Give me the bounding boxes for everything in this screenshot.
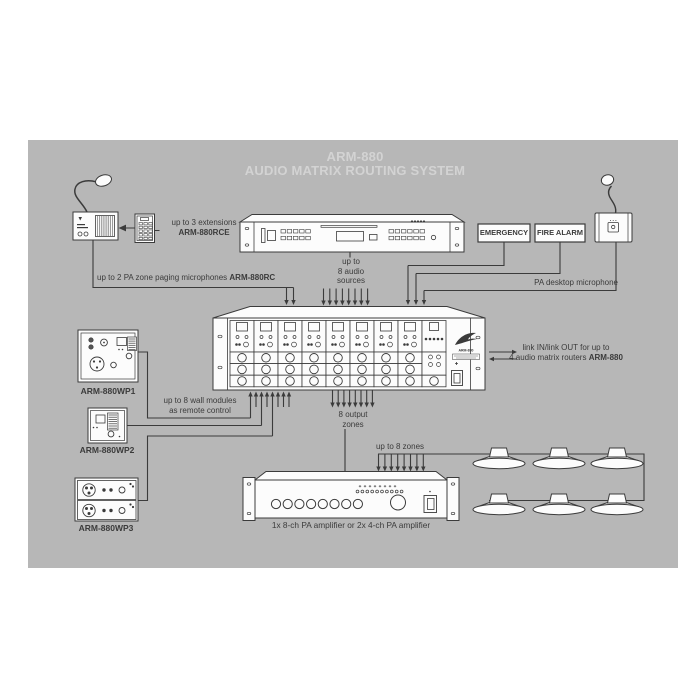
- knob-icon: [238, 354, 247, 363]
- strip-button: [269, 336, 272, 339]
- link-label-model: ARM-880: [589, 353, 623, 362]
- strip-led: [404, 344, 406, 346]
- dot: [132, 486, 133, 487]
- alarm-mic-input-arrow-head: [422, 300, 426, 305]
- rack-hole: [218, 366, 222, 369]
- sources-label-line1: up to: [337, 257, 365, 267]
- indicator-dot: [414, 221, 415, 222]
- ceiling-speaker: [591, 494, 643, 515]
- rack-hole: [245, 227, 249, 229]
- gooseneck: [609, 186, 616, 213]
- extensions-label: up to 3 extensions ARM-880RCE: [172, 218, 237, 237]
- rack-front: [255, 480, 447, 518]
- title-line1: ARM-880: [245, 150, 465, 164]
- level-led: [386, 490, 389, 493]
- power-frame: [268, 231, 276, 241]
- keypad-key: [139, 237, 142, 239]
- speaker-hat: [608, 448, 627, 457]
- strip-led: [308, 344, 310, 346]
- speaker-rim: [473, 458, 525, 468]
- left-arrow-icon: [119, 225, 127, 232]
- strip-led: [441, 338, 443, 340]
- wall-plate-wp2-device: [88, 408, 127, 443]
- led: [103, 509, 105, 511]
- sources-label-line3: sources: [337, 276, 365, 286]
- led: [118, 349, 120, 351]
- output-zone-arrow-head: [353, 403, 357, 408]
- knob-icon: [286, 354, 295, 363]
- level-led: [381, 490, 384, 493]
- wp2-label: ARM-880WP2: [80, 446, 135, 456]
- strip-led: [407, 344, 409, 346]
- strip-display: [261, 323, 272, 332]
- desktop-mic-label: PA desktop microphone: [534, 278, 618, 288]
- source-button: [408, 236, 413, 240]
- strip-button: [236, 336, 239, 339]
- knob-icon: [286, 377, 295, 386]
- zone-knob-icon: [342, 499, 351, 508]
- master-button: [437, 355, 441, 359]
- output-zone-arrow-head: [336, 403, 340, 408]
- knob-icon: [358, 377, 367, 386]
- speaker-hat: [550, 448, 569, 457]
- strip-led: [433, 338, 435, 340]
- speaker-rim: [591, 504, 643, 514]
- led: [110, 489, 112, 491]
- strip-led: [425, 338, 427, 340]
- source-button: [306, 236, 311, 240]
- strip-button: [308, 336, 311, 339]
- wall-module-arrow-head: [281, 392, 285, 397]
- talk-button-dot: [612, 225, 615, 228]
- label-mark: [77, 224, 85, 225]
- link-label: link IN/link OUT for up to 4 audio matri…: [509, 343, 623, 362]
- paging-label: up to 2 PA zone paging microphones ARM-8…: [97, 273, 275, 283]
- strip-led: [332, 344, 334, 346]
- rack-hole: [476, 367, 480, 370]
- strip-trim-knob: [316, 342, 321, 347]
- source-input-arrow-head: [347, 301, 351, 306]
- keypad-key: [144, 230, 147, 232]
- knob-icon: [108, 431, 114, 437]
- keypad-key: [139, 223, 142, 225]
- source-input-arrow-head: [359, 301, 363, 306]
- wall-plate-wp3-device: [75, 478, 138, 521]
- strip-button: [293, 336, 296, 339]
- wp3-label: ARM-880WP3: [79, 524, 134, 534]
- wp1-label: ARM-880WP1: [81, 387, 136, 397]
- master-button: [437, 363, 441, 367]
- ceiling-speaker: [473, 494, 525, 515]
- knob-icon: [310, 354, 319, 363]
- xlr-pin: [99, 360, 101, 362]
- strip-trim-knob: [388, 342, 393, 347]
- sources-label-line2: 8 audio: [337, 267, 365, 277]
- paging-microphone-device: [73, 173, 135, 240]
- xlr-pin: [91, 508, 93, 510]
- strip-led: [287, 344, 289, 346]
- level-led: [400, 490, 403, 493]
- strip-button: [389, 336, 392, 339]
- output-zone-arrow-head: [359, 403, 363, 408]
- led: [96, 427, 98, 429]
- output-zone-arrow-head: [365, 403, 369, 408]
- led: [429, 491, 431, 493]
- output-zones-line1: 8 output: [339, 410, 368, 420]
- keypad-key: [149, 237, 152, 239]
- strip-display: [357, 323, 368, 332]
- zone-knob-icon: [295, 499, 304, 508]
- wall-module-arrow-head: [270, 392, 274, 397]
- power-rocker: [428, 499, 435, 510]
- source-button: [389, 236, 394, 240]
- source-input-arrow-head: [321, 301, 325, 306]
- wall-module-arrow-head: [287, 392, 291, 397]
- page-title: ARM-880 AUDIO MATRIX ROUTING SYSTEM: [245, 150, 465, 178]
- strip-trim-knob: [244, 342, 249, 347]
- source-input-arrow-head: [365, 301, 369, 306]
- source-button: [281, 236, 286, 240]
- indicator-dot: [420, 221, 421, 222]
- strip-trim-knob: [340, 342, 345, 347]
- strip-display: [381, 323, 392, 332]
- zone-knob-icon: [353, 499, 362, 508]
- link-label-line1: link IN/link OUT for up to: [509, 343, 623, 353]
- link-label-line2-text: 4 audio matrix routers: [509, 353, 586, 362]
- display: [96, 415, 105, 423]
- dot: [130, 483, 131, 484]
- master-knob-icon: [391, 495, 406, 510]
- source-button: [395, 230, 400, 234]
- zones-label: up to 8 zones: [376, 442, 424, 452]
- knob-icon: [406, 354, 415, 363]
- led: [610, 220, 611, 221]
- rack-top: [213, 307, 485, 319]
- knob-icon: [406, 377, 415, 386]
- strip-led: [359, 344, 361, 346]
- speaker-hat: [550, 494, 569, 503]
- zone-knob-icon: [283, 499, 292, 508]
- amp-zone-arrow-head: [415, 467, 419, 472]
- source-button: [420, 236, 425, 240]
- jog-knob: [431, 235, 435, 239]
- strip-button: [260, 336, 263, 339]
- knob-icon: [119, 487, 125, 493]
- level-led: [395, 490, 398, 493]
- xlr-pin: [93, 360, 95, 362]
- channel-strips: [230, 321, 446, 387]
- source-button: [306, 230, 311, 234]
- speaker-hat: [490, 448, 509, 457]
- indicator-dot: [411, 221, 412, 222]
- rack-hole: [247, 512, 251, 514]
- paging-label-model: ARM-880RC: [229, 273, 275, 282]
- led: [119, 436, 121, 438]
- speaker-rim: [591, 458, 643, 468]
- keypad-key: [139, 230, 142, 232]
- power-button: [262, 229, 266, 243]
- gooseneck: [75, 181, 96, 212]
- strip-button: [284, 336, 287, 339]
- strip-trim-knob: [412, 342, 417, 347]
- wall-modules-line1: up to 8 wall modules: [164, 396, 237, 406]
- title-line2: AUDIO MATRIX ROUTING SYSTEM: [245, 164, 465, 178]
- master-cell: [422, 352, 446, 375]
- audio-source-device: [240, 215, 464, 253]
- grille: [109, 415, 118, 428]
- xlr-pin: [96, 366, 98, 368]
- led: [110, 509, 112, 511]
- button: [84, 232, 88, 236]
- xlr-pin: [86, 508, 88, 510]
- source-input-arrow-head: [353, 301, 357, 306]
- link-in-arrow-head: [489, 357, 494, 361]
- power-rocker: [454, 374, 460, 384]
- wall-module-arrow-head: [248, 392, 252, 397]
- eject-button: [370, 235, 378, 241]
- strip-button: [413, 336, 416, 339]
- amp-zone-arrow-head: [389, 467, 393, 472]
- wall-module-arrow-head: [265, 392, 269, 397]
- amplifier-label: 1x 8-ch PA amplifier or 2x 4-ch PA ampli…: [272, 521, 430, 531]
- indicator-dot: [423, 221, 424, 222]
- knob-icon: [262, 365, 271, 374]
- fire-alarm-label: FIRE ALARM: [535, 224, 585, 242]
- strip-display: [237, 323, 248, 332]
- led: [103, 489, 105, 491]
- speaker-hat: [490, 494, 509, 503]
- xlr-pin: [91, 487, 93, 489]
- knob-icon: [126, 353, 132, 359]
- strip-led: [356, 344, 358, 346]
- output-zone-arrow-head: [330, 403, 334, 408]
- xlr-pin: [88, 492, 90, 494]
- level-led: [371, 490, 374, 493]
- strip-led: [284, 344, 286, 346]
- knob-dot: [103, 342, 105, 344]
- alarm-mic-input-arrow-head: [414, 300, 418, 305]
- extension-module-device: [135, 214, 160, 243]
- strip-led: [380, 344, 382, 346]
- strip-button: [356, 336, 359, 339]
- speaker-rim: [533, 504, 585, 514]
- knob-icon: [382, 377, 391, 386]
- rack-hole: [476, 336, 480, 339]
- keypad-key: [144, 237, 147, 239]
- master-button: [429, 363, 433, 367]
- diagram-page: ARM-880: [0, 0, 700, 700]
- strip-led: [260, 344, 262, 346]
- knob-icon: [334, 365, 343, 374]
- output-zone-arrow-head: [370, 403, 374, 408]
- knob-icon: [262, 354, 271, 363]
- source-button: [401, 236, 406, 240]
- strip-button: [365, 336, 368, 339]
- keypad-key: [139, 226, 142, 228]
- ceiling-speaker: [591, 448, 643, 469]
- ceiling-speaker: [533, 448, 585, 469]
- pa-amplifier-device: [243, 472, 459, 521]
- output-zones-line2: zones: [339, 420, 368, 430]
- source-button: [395, 236, 400, 240]
- knob-icon: [358, 365, 367, 374]
- button: [89, 338, 93, 342]
- paging-label-text: up to 2 PA zone paging microphones: [97, 273, 227, 282]
- strip-button: [404, 336, 407, 339]
- source-input-arrow-head: [334, 301, 338, 306]
- knob-icon: [382, 365, 391, 374]
- source-button: [300, 236, 305, 240]
- wall-module-arrow-head: [259, 392, 263, 397]
- knob-icon: [430, 377, 439, 386]
- keypad-key: [139, 234, 142, 236]
- mic-capsule: [94, 173, 113, 188]
- strip-led: [383, 344, 385, 346]
- keypad-key: [149, 230, 152, 232]
- source-button: [408, 230, 413, 234]
- knob-icon: [310, 377, 319, 386]
- level-led: [390, 490, 393, 493]
- output-zone-arrow-head: [342, 403, 346, 408]
- rack-hole: [451, 483, 455, 485]
- source-button: [420, 230, 425, 234]
- xlr-pin: [88, 513, 90, 515]
- strip-led: [335, 344, 337, 346]
- rack-hole: [455, 227, 459, 229]
- led: [613, 220, 614, 221]
- extension-keypad: [139, 223, 152, 240]
- level-led: [356, 490, 359, 493]
- extension-display: [141, 218, 149, 221]
- amp-zone-arrow-head: [408, 467, 412, 472]
- rack-hole: [451, 512, 455, 514]
- label-mark: [77, 227, 88, 228]
- zone-knob-icon: [271, 499, 280, 508]
- level-led: [366, 490, 369, 493]
- rack-hole: [218, 335, 222, 338]
- rack-hole: [245, 244, 249, 246]
- alarm-mic-input-arrow-head: [406, 300, 410, 305]
- knob-icon: [334, 354, 343, 363]
- extensions-label-model: ARM-880RCE: [172, 228, 237, 238]
- source-button: [287, 236, 292, 240]
- keypad-key: [149, 226, 152, 228]
- rack-hole: [455, 244, 459, 246]
- source-button: [401, 230, 406, 234]
- rack-top: [240, 215, 464, 223]
- strip-trim-knob: [364, 342, 369, 347]
- strip-led: [429, 338, 431, 340]
- strip-led: [236, 344, 238, 346]
- knob-icon: [238, 377, 247, 386]
- wall-module-arrow-head: [254, 392, 258, 397]
- strip-button: [341, 336, 344, 339]
- amp-zone-arrow-head: [376, 467, 380, 472]
- emergency-label: EMERGENCY: [478, 224, 530, 242]
- strip-trim-knob: [292, 342, 297, 347]
- knob-icon: [358, 354, 367, 363]
- strip-led: [311, 344, 313, 346]
- led: [615, 220, 616, 221]
- keypad-key: [149, 234, 152, 236]
- matrix-router-device: ARM-880: [213, 307, 485, 391]
- strip-display: [430, 323, 439, 331]
- source-input-arrow-head: [340, 301, 344, 306]
- keypad-key: [144, 234, 147, 236]
- knob-icon: [334, 377, 343, 386]
- source-button: [389, 230, 394, 234]
- strip-button: [380, 336, 383, 339]
- speaker-rim: [533, 458, 585, 468]
- mic-capsule: [600, 173, 615, 186]
- dot: [130, 504, 131, 505]
- led: [122, 349, 124, 351]
- knob-icon: [262, 377, 271, 386]
- source-display: [337, 232, 364, 242]
- zone-knob-icon: [318, 499, 327, 508]
- keypad-key: [144, 223, 147, 225]
- source-button: [287, 230, 292, 234]
- extensions-label-line1: up to 3 extensions: [172, 218, 237, 228]
- rack-top: [255, 472, 447, 481]
- cd-slot: [321, 226, 377, 228]
- strip-display: [405, 323, 416, 332]
- output-zones-label: 8 output zones: [339, 410, 368, 429]
- amp-zone-arrow-head: [396, 467, 400, 472]
- strip-button: [245, 336, 248, 339]
- xlr-socket-icon: [90, 357, 104, 371]
- strip-led: [263, 344, 265, 346]
- dot: [132, 506, 133, 507]
- paging-input-arrow-head: [284, 300, 288, 305]
- ceiling-speaker: [473, 448, 525, 469]
- knob-icon: [382, 354, 391, 363]
- display: [117, 338, 127, 346]
- matrix-model-text: ARM-880: [459, 349, 474, 353]
- speaker-rim: [473, 504, 525, 514]
- knob-icon: [286, 365, 295, 374]
- button: [78, 232, 82, 236]
- speaker-hat: [608, 494, 627, 503]
- amp-zone-arrow-head: [402, 467, 406, 472]
- knob-icon: [310, 365, 319, 374]
- zone-knob-icon: [330, 499, 339, 508]
- ceiling-speaker: [533, 494, 585, 515]
- led: [93, 427, 95, 429]
- zone-knob-icon: [307, 499, 316, 508]
- desktop-microphone-device: [595, 173, 632, 242]
- knob-icon: [111, 362, 117, 368]
- source-button: [414, 230, 419, 234]
- model-plate: [453, 354, 480, 360]
- strip-button: [317, 336, 320, 339]
- level-led: [376, 490, 379, 493]
- strip-display: [285, 323, 296, 332]
- strip-led: [239, 344, 241, 346]
- wall-plate-wp1-device: [78, 330, 138, 382]
- rack-hole: [247, 483, 251, 485]
- wall-module-arrow-head: [276, 392, 280, 397]
- strip-display: [333, 323, 344, 332]
- master-button: [429, 355, 433, 359]
- link-label-line2: 4 audio matrix routers ARM-880: [509, 353, 623, 363]
- wall-modules-label: up to 8 wall modules as remote control: [164, 396, 237, 415]
- source-button: [414, 236, 419, 240]
- knob-icon: [238, 365, 247, 374]
- button: [89, 345, 93, 349]
- paging-input-arrow-head: [291, 300, 295, 305]
- keypad-key: [149, 223, 152, 225]
